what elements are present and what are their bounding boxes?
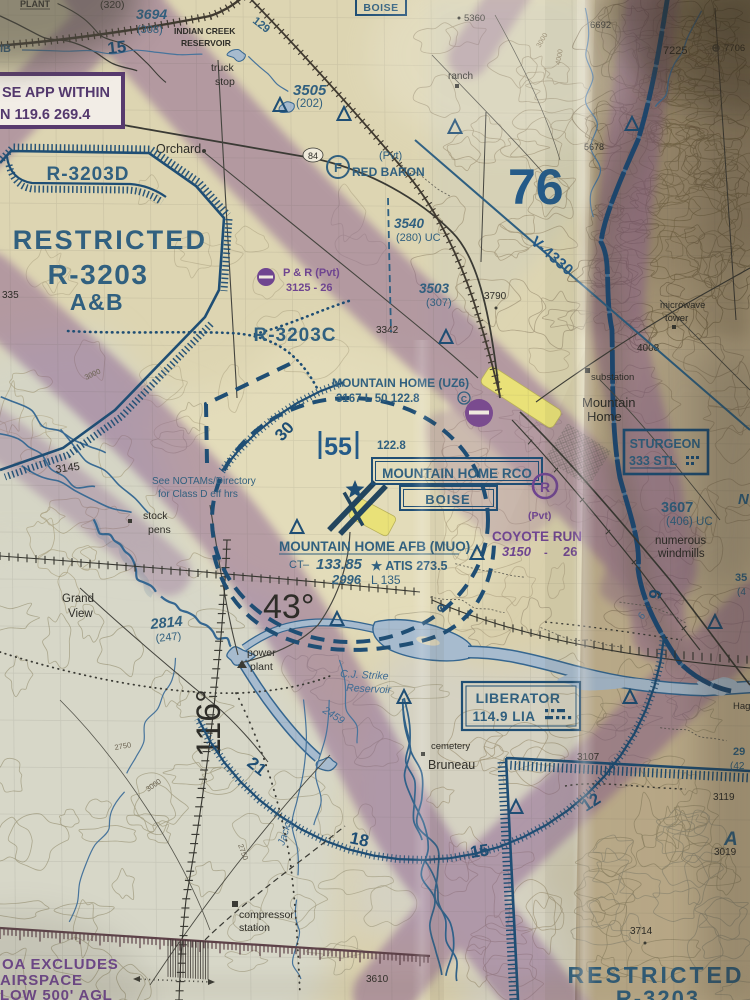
svg-text:–: – bbox=[303, 559, 310, 571]
svg-text:18: 18 bbox=[348, 828, 370, 851]
svg-text:L 135: L 135 bbox=[371, 573, 401, 587]
svg-text:133.85: 133.85 bbox=[316, 556, 363, 573]
svg-text:View: View bbox=[68, 608, 93, 620]
svg-text:84: 84 bbox=[308, 151, 318, 161]
svg-text:(307): (307) bbox=[426, 297, 452, 309]
svg-text:plant: plant bbox=[250, 661, 273, 673]
svg-text:stock: stock bbox=[143, 510, 168, 522]
svg-text:P & R (Pvt): P & R (Pvt) bbox=[283, 267, 340, 279]
svg-text:3503: 3503 bbox=[419, 281, 450, 296]
svg-text:335: 335 bbox=[2, 290, 19, 301]
svg-text:3540: 3540 bbox=[394, 216, 425, 231]
svg-text:power: power bbox=[247, 647, 276, 659]
svg-text:RESTRICTED: RESTRICTED bbox=[13, 225, 208, 255]
svg-text:A&B: A&B bbox=[70, 289, 124, 315]
svg-text:Orchard: Orchard bbox=[156, 142, 201, 156]
svg-text:Reservoir: Reservoir bbox=[346, 682, 392, 696]
svg-text:See NOTAMs/Directory: See NOTAMs/Directory bbox=[152, 476, 256, 487]
svg-text:compressor: compressor bbox=[239, 909, 294, 921]
svg-text:(308): (308) bbox=[137, 24, 163, 36]
svg-text:3150: 3150 bbox=[502, 544, 532, 559]
svg-text:F: F bbox=[334, 160, 342, 175]
svg-text:for Class D eff hrs: for Class D eff hrs bbox=[158, 489, 238, 500]
svg-text:stop: stop bbox=[215, 76, 235, 88]
svg-text:SE APP WITHIN: SE APP WITHIN bbox=[2, 85, 110, 101]
svg-text:R-3203: R-3203 bbox=[48, 259, 149, 290]
svg-text:3694: 3694 bbox=[136, 6, 167, 22]
svg-text:15: 15 bbox=[469, 841, 490, 862]
svg-text:N 119.6 269.4: N 119.6 269.4 bbox=[0, 107, 90, 123]
svg-text:R-3203C: R-3203C bbox=[253, 325, 336, 346]
svg-text:122.8: 122.8 bbox=[377, 440, 406, 452]
svg-text:3125 - 26: 3125 - 26 bbox=[286, 282, 332, 294]
svg-text:truck: truck bbox=[211, 62, 235, 74]
svg-text:CT: CT bbox=[289, 559, 304, 571]
svg-text:station: station bbox=[239, 922, 270, 934]
svg-text:MOUNTAIN HOME RCO: MOUNTAIN HOME RCO bbox=[382, 466, 532, 481]
svg-text:MOUNTAIN HOME (UZ6): MOUNTAIN HOME (UZ6) bbox=[332, 376, 469, 390]
svg-text:3167 L 50 122.8: 3167 L 50 122.8 bbox=[336, 393, 420, 405]
svg-text:3342: 3342 bbox=[376, 325, 399, 336]
svg-text:INDIAN CREEK: INDIAN CREEK bbox=[174, 26, 236, 36]
svg-text:RESERVOIR: RESERVOIR bbox=[181, 38, 231, 48]
svg-text:C.J. Strike: C.J. Strike bbox=[340, 668, 389, 683]
svg-text:2996: 2996 bbox=[331, 572, 362, 587]
svg-text:R-3203D: R-3203D bbox=[46, 164, 129, 185]
svg-text:pens: pens bbox=[148, 524, 171, 536]
svg-text:55: 55 bbox=[324, 433, 352, 461]
svg-text:RED BARON: RED BARON bbox=[352, 165, 425, 179]
svg-text:3505: 3505 bbox=[293, 82, 327, 99]
svg-text:3790: 3790 bbox=[484, 291, 507, 302]
svg-text:C: C bbox=[461, 394, 467, 404]
svg-text:(202): (202) bbox=[296, 98, 323, 110]
svg-text:114.9 LIA: 114.9 LIA bbox=[472, 709, 535, 724]
svg-text:Grand: Grand bbox=[62, 593, 94, 605]
svg-text:(280) UC: (280) UC bbox=[396, 232, 441, 244]
svg-text:(Pvt): (Pvt) bbox=[379, 150, 402, 162]
